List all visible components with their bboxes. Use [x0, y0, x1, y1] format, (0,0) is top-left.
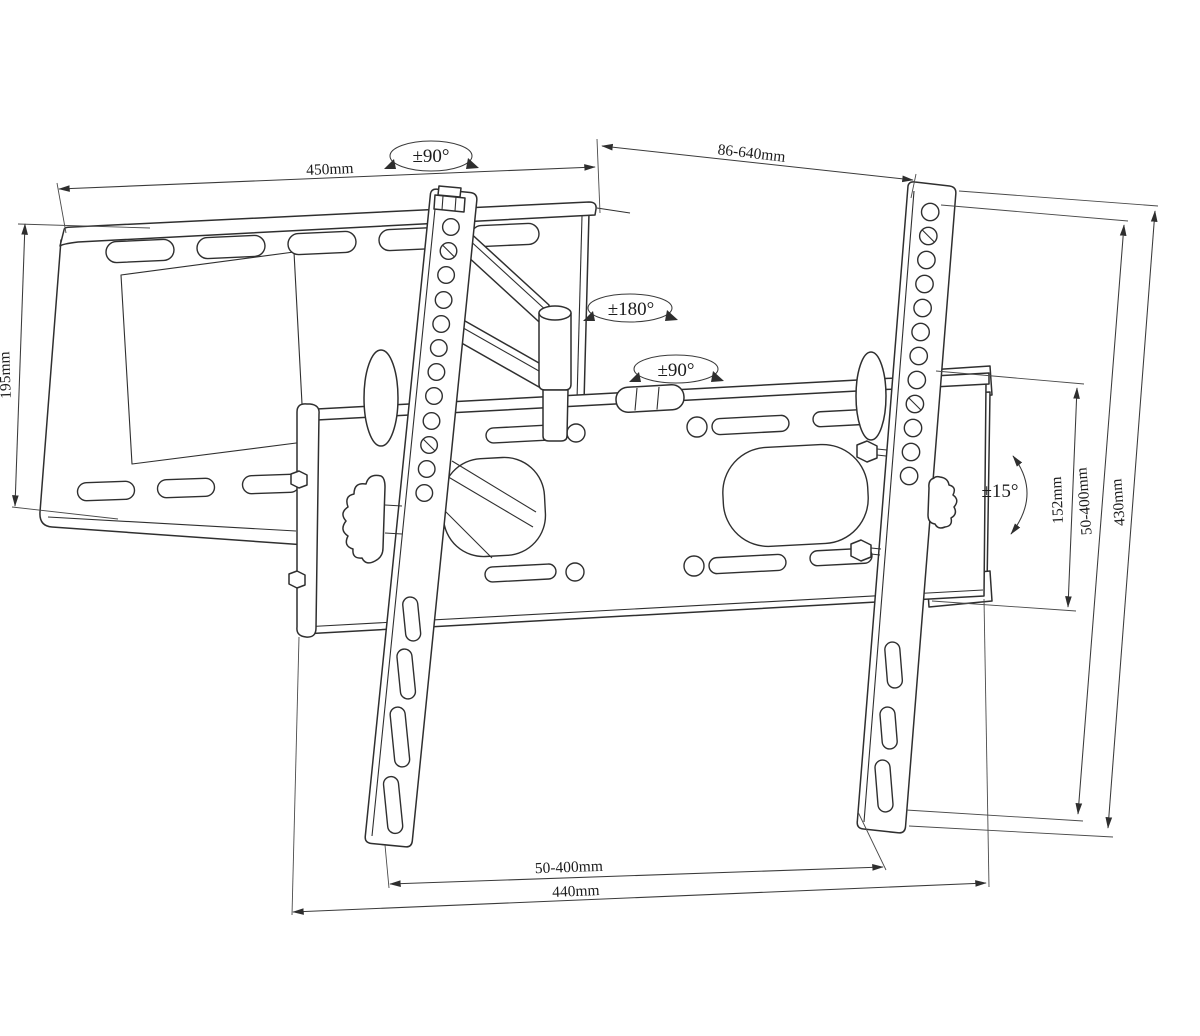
dim-label-wall-plate-width: 450mm [306, 160, 354, 179]
right-cutout [721, 442, 871, 548]
dim-label-bracket-width: 440mm [552, 882, 600, 901]
cap-bolt-lower [289, 571, 305, 588]
mount-technical-drawing: 450mm ±90° 86-640mm ±180° ±90° 195mm ±15… [0, 0, 1200, 1036]
left-cutout [441, 455, 548, 558]
dim-label-swivel-top: ±90° [412, 146, 449, 167]
dim-label-rail-length: 430mm [1108, 478, 1129, 527]
tilt-hook-right [856, 352, 886, 440]
dim-label-vesa-horizontal: 50-400mm [535, 858, 604, 877]
arm-sleeve [543, 390, 568, 441]
dim-label-vesa-vertical: 50-400mm [1073, 467, 1095, 536]
dim-line-wall-plate-height [15, 224, 25, 506]
dim-line-bracket-width [293, 883, 986, 912]
dim-label-tilt-range: ±15° [981, 481, 1018, 502]
dim-line-vesa-horizontal [390, 867, 883, 884]
tilt-hook-left [364, 350, 398, 446]
dim-label-arm-rotation: ±180° [608, 299, 655, 320]
dim-label-bracket-height: 152mm [1048, 476, 1067, 524]
cap-bolt-upper [291, 471, 307, 488]
dim-label-wall-plate-height: 195mm [0, 351, 15, 399]
drawing-canvas: 450mm ±90° 86-640mm ±180° ±90° 195mm ±15… [0, 0, 1200, 1036]
dim-label-swivel-mid: ±90° [657, 360, 694, 381]
hinge-pin [615, 384, 684, 413]
pivot-cylinder-top [539, 306, 571, 320]
